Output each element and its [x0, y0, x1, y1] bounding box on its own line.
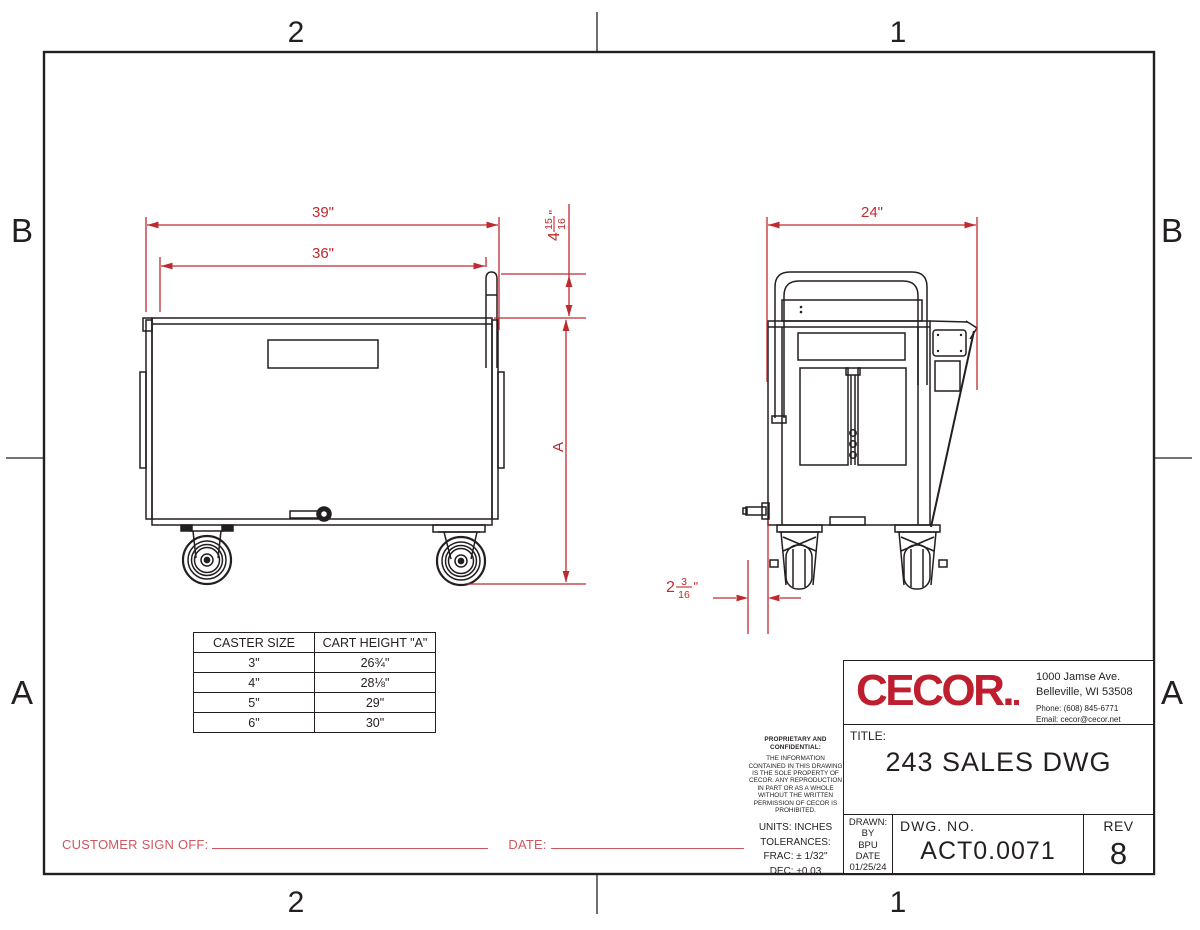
table-cell: 6": [194, 713, 315, 733]
date-label: DATE: [844, 851, 892, 862]
drawn-date: 01/25/24: [844, 862, 892, 873]
caster-end-right: [895, 525, 947, 589]
dim-inner-width: 36": [312, 245, 334, 262]
dim-depth: 24": [861, 204, 883, 221]
cart-body: [152, 318, 492, 525]
zone-label-bottom-2: 2: [288, 886, 305, 919]
dimension-lines: [146, 204, 977, 634]
title-label: TITLE:: [850, 729, 886, 743]
rev-cell: REV 8: [1084, 815, 1153, 875]
dim-overall-width: 39": [312, 204, 334, 221]
svg-text:15: 15: [543, 218, 555, 230]
table-row: 6" 30": [194, 713, 436, 733]
frac-tolerance: FRAC: ± 1/32": [747, 850, 844, 865]
logo-trademark-icon: [1014, 700, 1019, 705]
phone: Phone: (608) 845-6771: [1036, 703, 1133, 714]
by-label: BY: [844, 828, 892, 839]
drawn-by: BPU: [844, 840, 892, 851]
latch-bar: [290, 511, 320, 518]
table-row: 4" 28⅛": [194, 673, 436, 693]
dim-post-height: 4 15 16 ": [543, 210, 568, 242]
svg-text:3: 3: [681, 576, 687, 588]
table-cell: 28⅛": [315, 673, 436, 693]
address-line1: 1000 Jamse Ave.: [1036, 670, 1133, 685]
table-cell: 4": [194, 673, 315, 693]
release-pin: [743, 503, 769, 519]
dim-pin-offset: 2 3 16 ": [666, 576, 699, 601]
table-header-row: CASTER SIZE CART HEIGHT "A": [194, 633, 436, 653]
caster-end-left: [770, 525, 822, 589]
dec-tolerance: DEC: ±0.03: [747, 865, 844, 880]
cart-end-view: [743, 272, 977, 589]
svg-text:16: 16: [556, 218, 568, 230]
proprietary-heading: PROPRIETARY AND CONFIDENTIAL:: [747, 736, 844, 751]
cecor-logo: CECOR.: [856, 669, 1019, 713]
label-plate: [268, 340, 378, 368]
logo-text: CECOR: [856, 666, 1002, 715]
zone-label-top-1: 1: [890, 16, 907, 49]
svg-text:": ": [546, 210, 561, 215]
dwg-no-label: DWG. NO.: [900, 818, 975, 834]
cart-side-view: [140, 272, 504, 585]
table-cell: 3": [194, 653, 315, 673]
table-cell: 26¾": [315, 653, 436, 673]
zone-label-bottom-1: 1: [890, 886, 907, 919]
customer-signoff: CUSTOMER SIGN OFF: DATE:: [62, 834, 744, 852]
proprietary-body: THE INFORMATION CONTAINED IN THIS DRAWIN…: [747, 755, 844, 814]
label-plate-end: [798, 333, 905, 360]
table-cell: 30": [315, 713, 436, 733]
title-block-logo-row: CECOR. 1000 Jamse Ave. Belleville, WI 53…: [844, 661, 1153, 725]
signoff-date-label: DATE:: [508, 837, 546, 852]
handle-panel: [782, 300, 922, 321]
zone-label-right-a: A: [1161, 674, 1183, 711]
table-cell: 5": [194, 693, 315, 713]
signoff-date-line[interactable]: [551, 834, 744, 849]
table-row: 5" 29": [194, 693, 436, 713]
rev-label: REV: [1084, 818, 1153, 834]
zone-label-top-2: 2: [288, 16, 305, 49]
caster-size-table: CASTER SIZE CART HEIGHT "A" 3" 26¾" 4" 2…: [193, 632, 436, 733]
title-block-bottom-row: DRAWN: BY BPU DATE 01/25/24 DWG. NO. ACT…: [844, 815, 1153, 875]
drawn-cell: DRAWN: BY BPU DATE 01/25/24: [844, 815, 893, 875]
table-header-cart-height: CART HEIGHT "A": [315, 633, 436, 653]
caster-right: [433, 525, 485, 585]
customer-signoff-line[interactable]: [212, 834, 488, 849]
drawing-title: 243 SALES DWG: [844, 747, 1153, 778]
zone-label-right-b: B: [1161, 212, 1183, 249]
drawing-sheet: 2 1 2 1 B A B A: [0, 0, 1200, 930]
title-block: CECOR. 1000 Jamse Ave. Belleville, WI 53…: [843, 660, 1154, 874]
address-line2: Belleville, WI 53508: [1036, 685, 1133, 700]
svg-text:2: 2: [666, 579, 675, 596]
customer-signoff-label: CUSTOMER SIGN OFF:: [62, 837, 208, 852]
table-row: 3" 26¾": [194, 653, 436, 673]
tolerances-note: TOLERANCES:: [747, 836, 844, 851]
rev-value: 8: [1084, 836, 1153, 872]
dwg-no-cell: DWG. NO. ACT0.0071: [893, 815, 1084, 875]
table-header-caster-size: CASTER SIZE: [194, 633, 315, 653]
email: Email: cecor@cecor.net: [1036, 714, 1133, 725]
open-door: [930, 321, 977, 527]
svg-text:16: 16: [678, 589, 690, 601]
title-row: TITLE: 243 SALES DWG: [844, 725, 1153, 815]
units-note: UNITS: INCHES: [747, 821, 844, 836]
dimension-text: 39" 36" 24" A 4 15 16 " 2 3 16 ": [312, 204, 883, 601]
logo-period: .: [1002, 666, 1012, 715]
dim-cart-height: A: [550, 442, 567, 452]
dwg-no-value: ACT0.0071: [893, 837, 1083, 866]
proprietary-block: PROPRIETARY AND CONFIDENTIAL: THE INFORM…: [747, 736, 844, 879]
drawn-label: DRAWN:: [844, 817, 892, 828]
zone-label-left-a: A: [11, 674, 33, 711]
zone-label-left-b: B: [11, 212, 33, 249]
caster-left: [181, 525, 233, 584]
table-cell: 29": [315, 693, 436, 713]
svg-text:": ": [694, 579, 699, 594]
svg-text:4: 4: [546, 232, 563, 241]
